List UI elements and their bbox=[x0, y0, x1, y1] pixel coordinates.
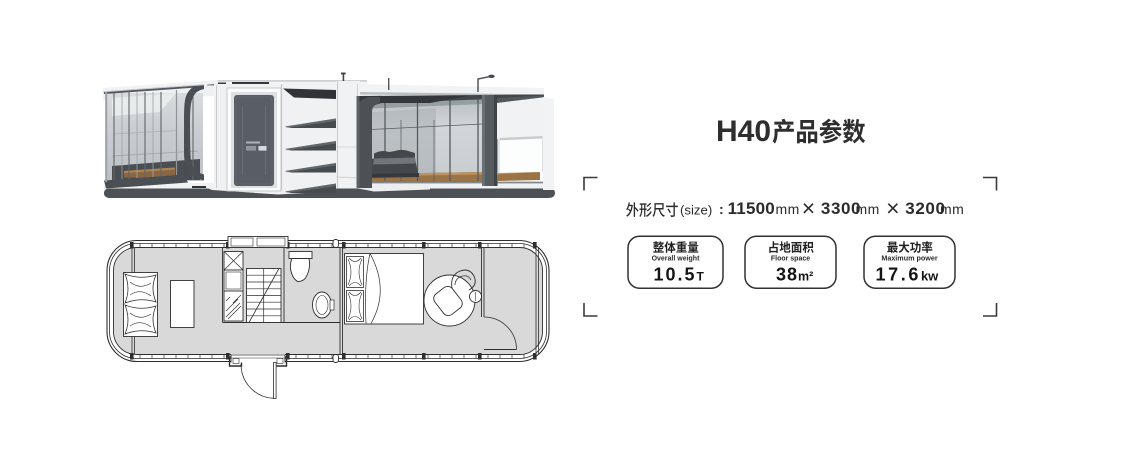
svg-text:mm: mm bbox=[776, 201, 800, 217]
svg-text:×: × bbox=[886, 196, 899, 221]
svg-text:11500: 11500 bbox=[728, 199, 775, 218]
svg-text:Floor space: Floor space bbox=[771, 255, 810, 262]
svg-text:(size): (size) bbox=[680, 202, 712, 217]
svg-text::: : bbox=[719, 201, 724, 217]
svg-text:Maximum power: Maximum power bbox=[881, 253, 938, 262]
svg-text:×: × bbox=[802, 196, 815, 221]
svg-text:mm: mm bbox=[940, 201, 964, 217]
svg-text:Overall weight: Overall weight bbox=[652, 255, 701, 262]
svg-text:mm: mm bbox=[856, 201, 880, 217]
svg-text:H40: H40 bbox=[716, 115, 771, 148]
